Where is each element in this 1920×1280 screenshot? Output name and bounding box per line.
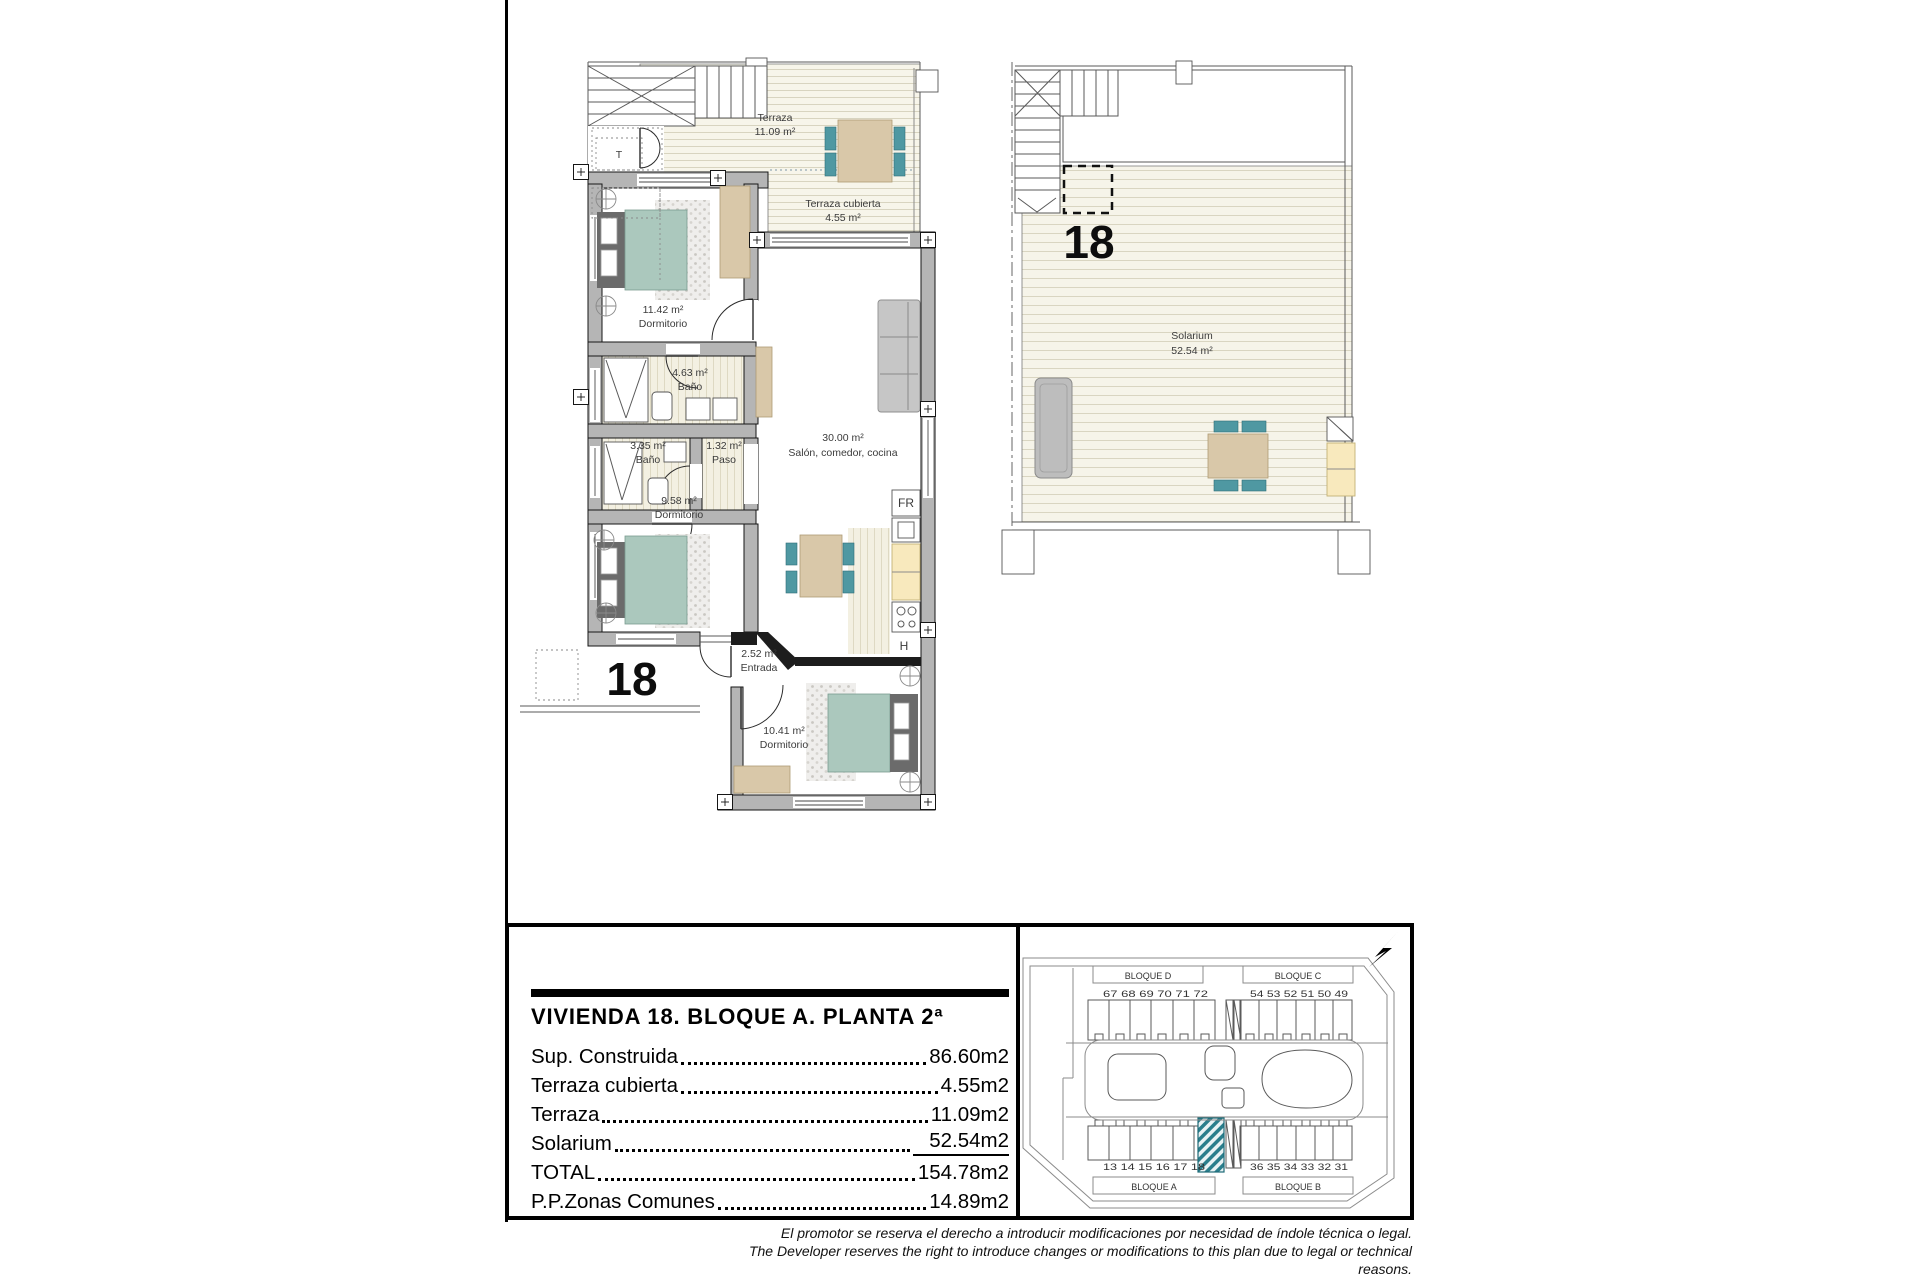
panel-divider [1016, 923, 1020, 1220]
title-bar [531, 989, 1009, 997]
bano1-name: Baño [678, 381, 703, 393]
area-row: Solarium 52.54m2 [531, 1127, 1009, 1156]
dotted-leader [615, 1149, 910, 1152]
bano1-area: 4.63 m² [672, 367, 708, 379]
salon-name: Salón, comedor, cocina [788, 447, 897, 459]
dotted-leader [598, 1178, 915, 1181]
area-row-label: TOTAL [531, 1161, 595, 1185]
hob-label: H [900, 639, 909, 653]
terrace-corner-pier [916, 70, 938, 92]
terraza-name: Terraza [757, 112, 792, 124]
rug-icon [734, 766, 790, 793]
roof-notch [1176, 61, 1192, 84]
bed-icon [806, 683, 918, 781]
disclaimer-line-es: El promotor se reserva el derecho a intr… [700, 1224, 1412, 1242]
area-row-label: P.P.Zonas Comunes [531, 1190, 715, 1214]
wardrobe-icon [720, 186, 750, 278]
dining-table-icon [786, 535, 854, 597]
fridge-label: FR [898, 496, 914, 510]
solarium-unit-number: 18 [1063, 216, 1114, 268]
plan-sheet-page: T Terraza 11.09 m² Terraza cubierta 4.55… [0, 0, 1920, 1280]
area-row-label: Terraza [531, 1103, 599, 1127]
area-row-label: Terraza cubierta [531, 1074, 678, 1098]
dormitorio3-name: Dormitorio [760, 739, 809, 751]
dotted-leader [602, 1120, 927, 1123]
paso-area: 1.32 m² [706, 440, 742, 452]
sofa-icon [878, 300, 920, 412]
area-row-label: Solarium [531, 1132, 612, 1156]
area-row-value: 52.54m2 [913, 1129, 1009, 1156]
sheet-title: VIVIENDA 18. BLOQUE A. PLANTA 2ª [531, 1004, 1009, 1030]
apartment-unit-number: 18 [606, 653, 657, 705]
disclaimer-line-en: The Developer reserves the right to intr… [700, 1242, 1412, 1278]
area-row: Sup. Construida 86.60m2 [531, 1040, 1009, 1069]
terraza-cubierta-name: Terraza cubierta [805, 198, 880, 210]
footing [1338, 530, 1370, 574]
dormitorio3-area: 10.41 m² [763, 725, 805, 737]
solarium-area: 52.54 m² [1171, 345, 1213, 357]
bed-icon [597, 200, 710, 300]
outdoor-kitchen-icon [1327, 417, 1355, 496]
kitchen-icons [892, 490, 920, 632]
dormitorio2-area: 9.58 m² [661, 495, 697, 507]
solarium-name: Solarium [1171, 330, 1213, 342]
dormitorio2-name: Dormitorio [655, 509, 704, 521]
terraza-cubierta-area: 4.55 m² [825, 212, 861, 224]
area-row-value: 86.60m2 [929, 1045, 1009, 1069]
area-row-value: 14.89m2 [929, 1190, 1009, 1214]
dormitorio1-area: 11.42 m² [643, 304, 684, 316]
bano2-name: Baño [636, 454, 661, 466]
dormitorio1-name: Dormitorio [639, 318, 688, 330]
sideboard-icon [756, 347, 772, 417]
footing [1002, 530, 1034, 574]
t-label: T [616, 149, 623, 161]
area-row: Terraza 11.09m2 [531, 1098, 1009, 1127]
area-row: P.P.Zonas Comunes 14.89m2 [531, 1185, 1009, 1214]
entrada-name: Entrada [741, 662, 778, 674]
area-row-label: Sup. Construida [531, 1045, 678, 1069]
terraza-area: 11.09 m² [755, 126, 796, 138]
solarium-plan: 18 Solarium 52.54 m² [1002, 61, 1370, 574]
disclaimer: El promotor se reserva el derecho a intr… [700, 1224, 1412, 1278]
salon-area: 30.00 m² [822, 432, 864, 444]
lounger-icon [1035, 378, 1072, 478]
area-row: Terraza cubierta 4.55m2 [531, 1069, 1009, 1098]
area-table: VIVIENDA 18. BLOQUE A. PLANTA 2ª Sup. Co… [531, 989, 1009, 1214]
solarium-table-icon [1208, 421, 1268, 491]
bed-icon [597, 534, 710, 628]
bano2-area: 3.35 m² [630, 440, 666, 452]
paso-name: Paso [712, 454, 736, 466]
stairs-icon [588, 66, 767, 126]
entrada-area: 2.52 m² [741, 648, 777, 660]
apartment-plan: T Terraza 11.09 m² Terraza cubierta 4.55… [520, 58, 938, 810]
dotted-leader [718, 1207, 926, 1210]
area-row-value: 154.78m2 [918, 1161, 1009, 1185]
dotted-leader [681, 1091, 938, 1094]
dotted-leader [681, 1062, 926, 1065]
area-row-value: 4.55m2 [941, 1074, 1009, 1098]
area-row-value: 11.09m2 [931, 1103, 1009, 1127]
area-row: TOTAL 154.78m2 [531, 1156, 1009, 1185]
